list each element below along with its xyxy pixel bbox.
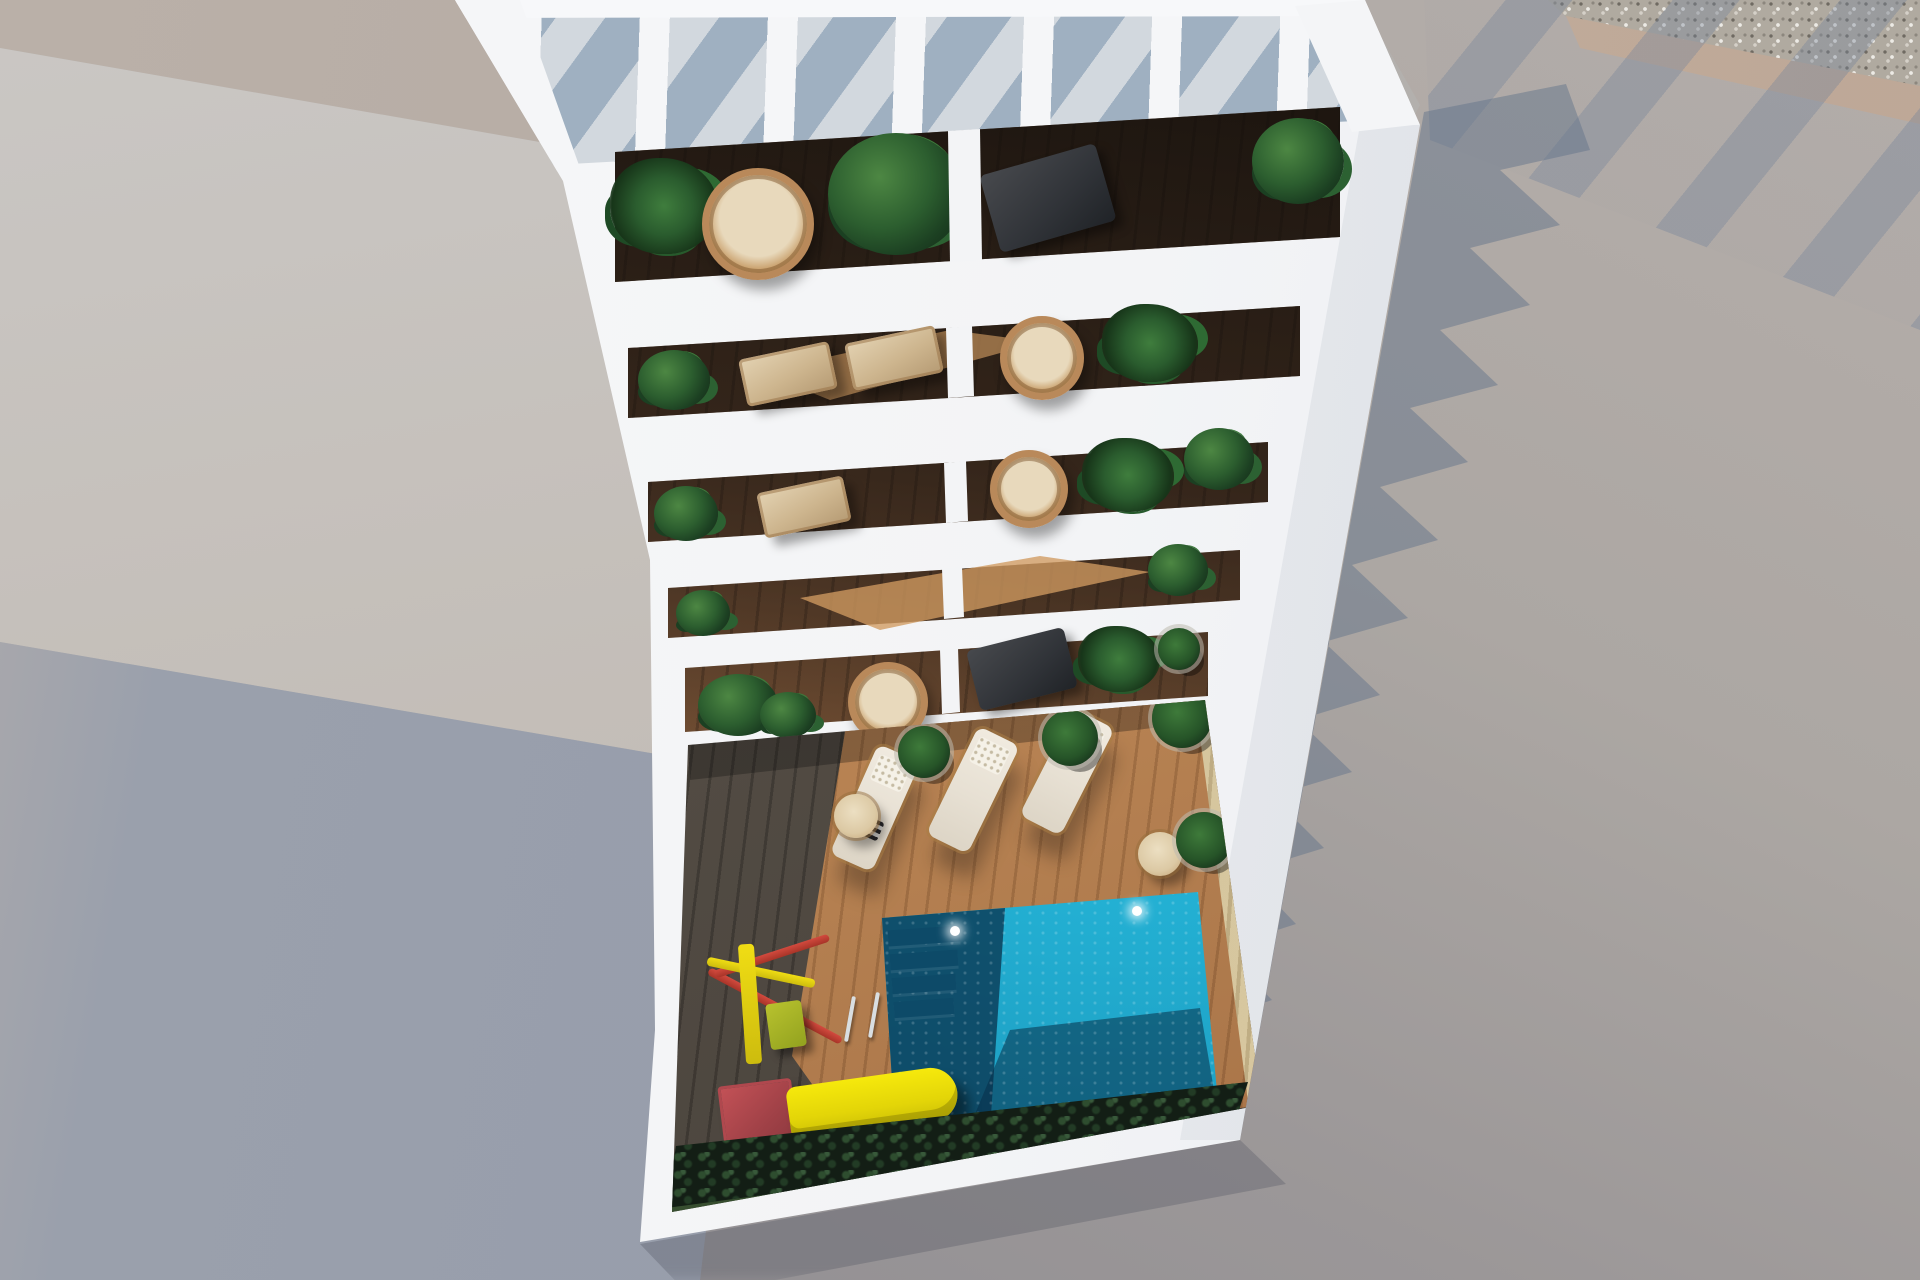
climbing-frame-panel — [765, 1000, 807, 1051]
balcony-plant — [1184, 428, 1254, 490]
potted-plant — [1042, 710, 1098, 766]
wicker-chair — [990, 450, 1068, 528]
lounger-pillow — [968, 736, 1011, 776]
potted-plant — [898, 726, 950, 778]
balcony-plant — [1252, 118, 1344, 204]
monstera-plant — [828, 133, 964, 255]
balcony-plant — [676, 590, 730, 636]
balcony-plant — [760, 692, 816, 738]
pool-light — [1132, 906, 1142, 916]
hanging-egg-chair — [702, 168, 814, 280]
palm-plant — [1078, 626, 1160, 692]
balcony-plant — [654, 486, 718, 541]
palm-plant — [1102, 304, 1198, 382]
potted-plant — [1176, 812, 1232, 868]
aerial-building-render — [0, 0, 1920, 1280]
side-table — [834, 794, 878, 838]
palm-plant — [610, 158, 718, 254]
balcony-plant — [1148, 544, 1208, 596]
wicker-chair — [1000, 316, 1084, 400]
pool-light — [950, 926, 960, 936]
potted-plant — [1158, 628, 1200, 670]
balcony-plant — [638, 350, 710, 410]
palm-plant — [1082, 438, 1174, 512]
